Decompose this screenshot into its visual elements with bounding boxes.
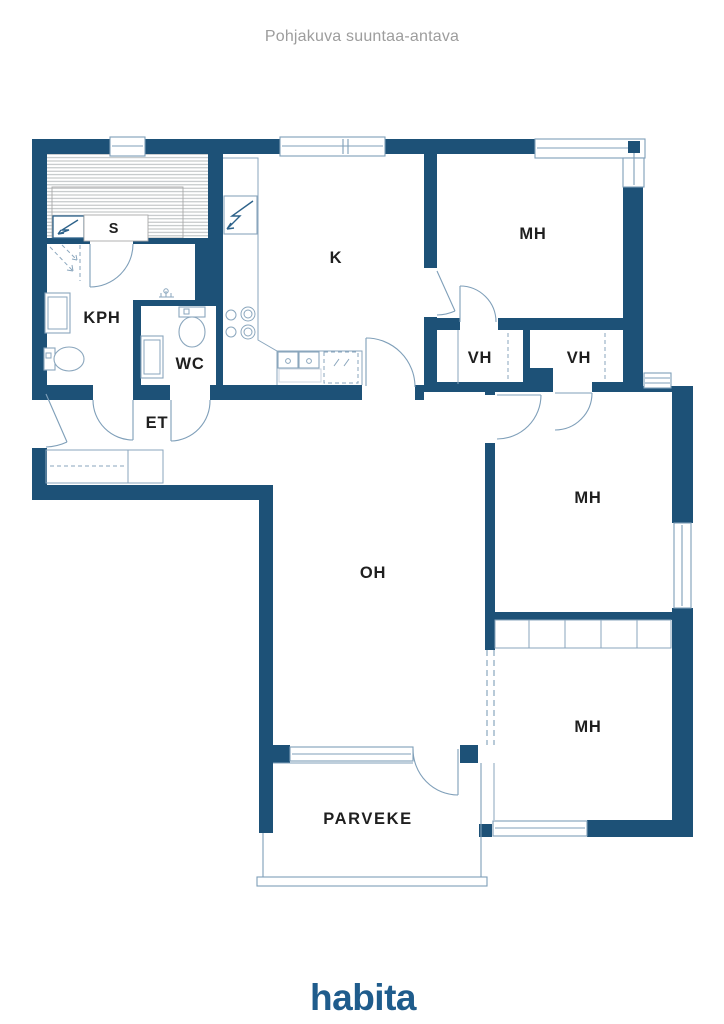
room-label-living-room: OH <box>360 564 386 582</box>
entry-wardrobe <box>46 450 163 483</box>
wall-segment <box>424 317 437 392</box>
page-title: Pohjakuva suuntaa-antava <box>265 28 459 45</box>
kitchen-sink-icon <box>278 352 321 382</box>
sink-wc-icon <box>141 336 163 378</box>
wall-segment <box>133 385 170 400</box>
window-bedroom3 <box>493 821 587 836</box>
door-sauna <box>90 244 133 287</box>
wall-segment <box>672 386 693 523</box>
room-label-sauna: S <box>109 221 119 237</box>
wall-segment <box>259 500 273 763</box>
wall-segment <box>32 139 110 154</box>
room-labels: S KPH WC ET K MH VH VH MH OH MH PARVEKE <box>83 221 601 828</box>
room-label-bedroom3: MH <box>574 718 601 736</box>
window-bedroom2 <box>674 523 691 608</box>
faucet-icon <box>159 289 174 297</box>
room-label-bathroom: KPH <box>83 309 120 327</box>
floorplan-drawing: Pohjakuva suuntaa-antava <box>0 0 724 1024</box>
room-label-bedroom1: MH <box>519 225 546 243</box>
toilet-wc-icon <box>179 307 205 347</box>
wall-segment <box>460 745 478 763</box>
bedroom-wardrobe-row <box>495 620 671 648</box>
toilet-kph-icon <box>44 347 84 371</box>
door-entrance <box>46 394 67 447</box>
shower-icon <box>50 245 80 281</box>
wall-segment <box>424 382 523 392</box>
dishwasher-icon <box>324 352 358 383</box>
floorplan-page: Pohjakuva suuntaa-antava <box>0 0 724 1024</box>
wall-segment <box>415 385 424 400</box>
wall-segment <box>208 154 223 239</box>
door-balcony <box>413 749 458 795</box>
wall-segment <box>437 318 460 330</box>
window-corner-post <box>628 141 640 153</box>
window-sauna <box>110 137 145 156</box>
door-kitchen <box>366 338 415 387</box>
fixtures <box>44 158 671 886</box>
wall-segment <box>133 300 223 306</box>
wall-segment <box>32 485 273 500</box>
wall-segment <box>498 318 623 330</box>
room-label-closet1: VH <box>468 349 493 367</box>
wall-segment <box>259 763 273 833</box>
stove-icon <box>226 307 255 339</box>
vent-box <box>644 373 671 388</box>
dashed-partition <box>487 650 494 820</box>
door-bedroom1-kitchen <box>437 271 455 315</box>
wall-segment <box>385 139 535 154</box>
door-bathroom <box>93 400 133 440</box>
wall-segment <box>210 385 362 400</box>
wall-segment <box>485 443 495 650</box>
wall-segment <box>145 139 280 154</box>
room-label-balcony: PARVEKE <box>323 810 412 828</box>
wall-segment <box>672 608 693 837</box>
wall-segment <box>495 612 672 620</box>
room-label-kitchen: K <box>330 249 343 267</box>
door-closet1 <box>460 286 496 322</box>
wall-segment <box>623 187 643 392</box>
kitchen-counter <box>223 158 362 385</box>
wall-segment <box>523 330 530 370</box>
wall-segment <box>485 389 495 395</box>
room-label-entry: ET <box>146 414 169 432</box>
window-living-room <box>290 747 413 761</box>
door-bedroom2-hall <box>497 395 541 439</box>
wall-segment <box>195 239 223 302</box>
room-label-closet2: VH <box>567 349 592 367</box>
electric-panel-icon <box>224 196 257 234</box>
wall-segment <box>259 745 290 763</box>
wall-segment <box>592 382 623 392</box>
wall-segment <box>133 306 141 386</box>
room-label-toilet: WC <box>175 355 204 373</box>
brand-logo: habita <box>310 977 417 1018</box>
wall-segment <box>587 820 693 837</box>
wall-segment <box>32 385 93 400</box>
window-kitchen <box>280 137 385 156</box>
window-bedroom1-corner <box>535 139 645 187</box>
wall-segment <box>216 306 223 386</box>
wall-segment <box>424 154 437 268</box>
room-label-bedroom2: MH <box>574 489 601 507</box>
door-closet2 <box>555 393 592 430</box>
washing-machine-icon <box>45 293 70 333</box>
wall-segment <box>523 368 553 392</box>
door-toilet <box>171 400 210 441</box>
wall-segment <box>43 238 90 244</box>
sauna-stove-icon <box>53 216 84 238</box>
